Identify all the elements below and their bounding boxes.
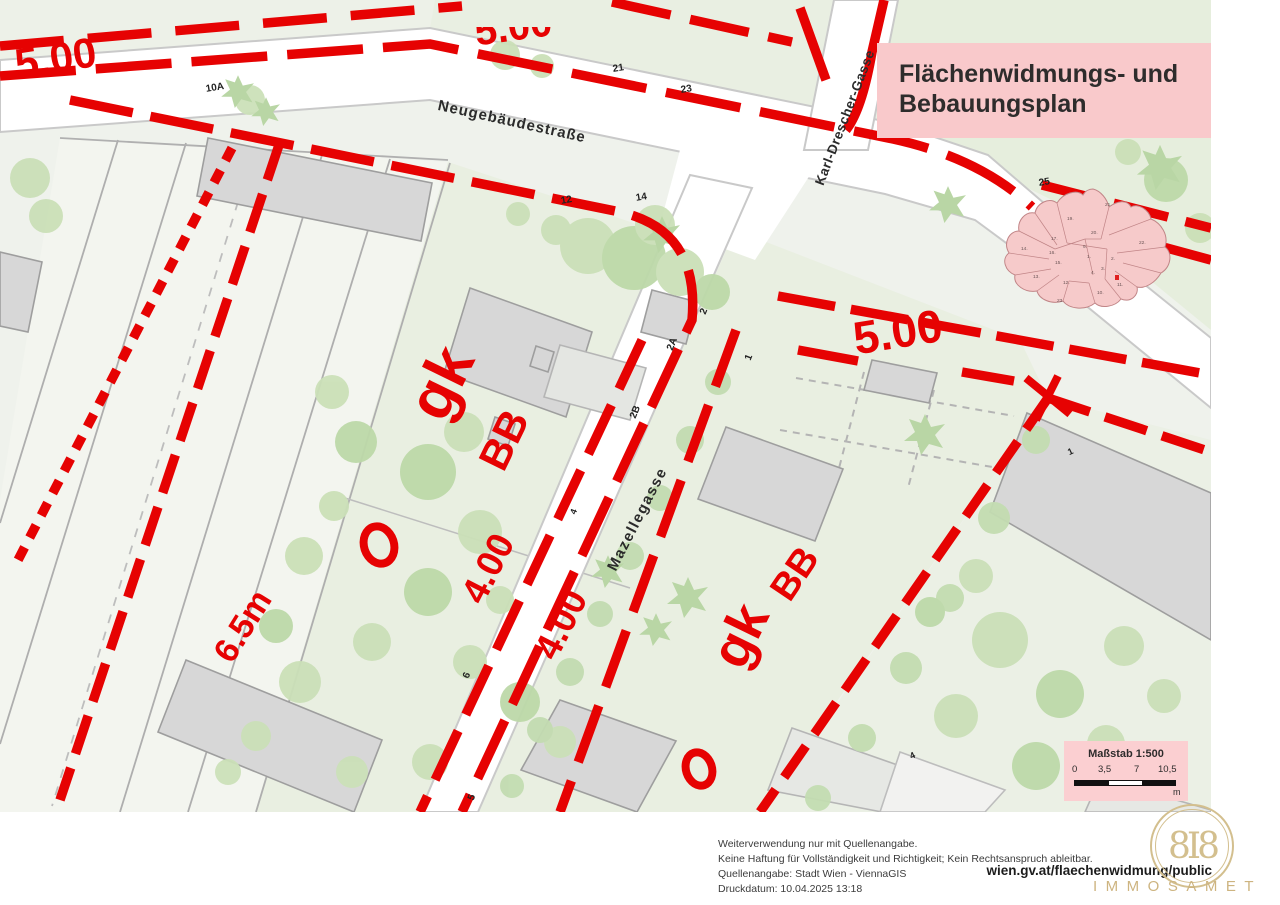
minimap-district: 17. bbox=[1051, 237, 1058, 242]
plan-title-line2: Bebauungsplan bbox=[899, 90, 1211, 120]
minimap-district: 23. bbox=[1057, 299, 1064, 304]
minimap-district: 21. bbox=[1105, 203, 1112, 208]
minimap-district: 4. bbox=[1091, 271, 1095, 276]
minimap-district: 14. bbox=[1021, 247, 1028, 252]
minimap-district: 3. bbox=[1101, 267, 1105, 272]
minimap-district: 12. bbox=[1063, 281, 1070, 286]
scale-bar bbox=[1074, 780, 1176, 786]
scale-tick: 10,5 bbox=[1158, 764, 1177, 775]
scale-tick: 0 bbox=[1072, 764, 1077, 775]
minimap-district: 13. bbox=[1033, 275, 1040, 280]
minimap-district: 2. bbox=[1111, 257, 1115, 262]
minimap-district: 20. bbox=[1091, 231, 1098, 236]
location-marker bbox=[1115, 275, 1119, 280]
scale-title: Maßstab 1:500 bbox=[1064, 748, 1188, 760]
immosamet-watermark: IMMOSAMET bbox=[1093, 878, 1262, 895]
logo-monogram: 8I8 bbox=[1150, 804, 1234, 888]
minimap-district: 1. bbox=[1087, 255, 1091, 260]
house-number: 21 bbox=[612, 62, 625, 75]
immosamet-logo: 8I8 bbox=[1150, 804, 1234, 888]
scale-box: Maßstab 1:500 0 3,5 7 10,5 m bbox=[1064, 741, 1188, 801]
page: { "colors": {"red": "#e60202", "pink": "… bbox=[0, 0, 1280, 905]
minimap-district: 10. bbox=[1097, 291, 1104, 296]
plan-title-box: Flächenwidmungs- und Bebauungsplan bbox=[877, 43, 1211, 138]
scale-tick: 3,5 bbox=[1098, 764, 1111, 775]
minimap-district: 9. bbox=[1083, 245, 1087, 250]
width-label-5m-topcenter-clip: 5.00 bbox=[468, 27, 586, 73]
plan-title-line1: Flächenwidmungs- und bbox=[899, 60, 1211, 90]
zoning-map: Neugebäudestraße Karl-Drescher-Gasse Maz… bbox=[0, 0, 1211, 812]
width-label-5m-topcenter: 5.00 bbox=[472, 27, 555, 53]
house-number: 12 bbox=[560, 194, 573, 207]
footer-line1: Weiterverwendung nur mit Quellenangabe. bbox=[718, 837, 1093, 852]
width-label-5m-right: 5.00 bbox=[850, 302, 946, 361]
minimap-district: 22. bbox=[1139, 241, 1146, 246]
house-number: 14 bbox=[635, 191, 648, 204]
house-number: 23 bbox=[680, 83, 693, 96]
minimap-district: 11. bbox=[1117, 283, 1123, 288]
scale-unit: m bbox=[1173, 787, 1181, 797]
minimap-district: 15. bbox=[1055, 261, 1062, 266]
footer-line4: Druckdatum: 10.04.2025 13:18 bbox=[718, 882, 1093, 897]
vienna-districts-minimap: 21. 19. 20. 22. 9. 17. 14. 16. 15. 1. 2.… bbox=[997, 183, 1189, 311]
scale-tick: 7 bbox=[1134, 764, 1139, 775]
minimap-district: 19. bbox=[1067, 217, 1074, 222]
minimap-district: 16. bbox=[1049, 251, 1056, 256]
